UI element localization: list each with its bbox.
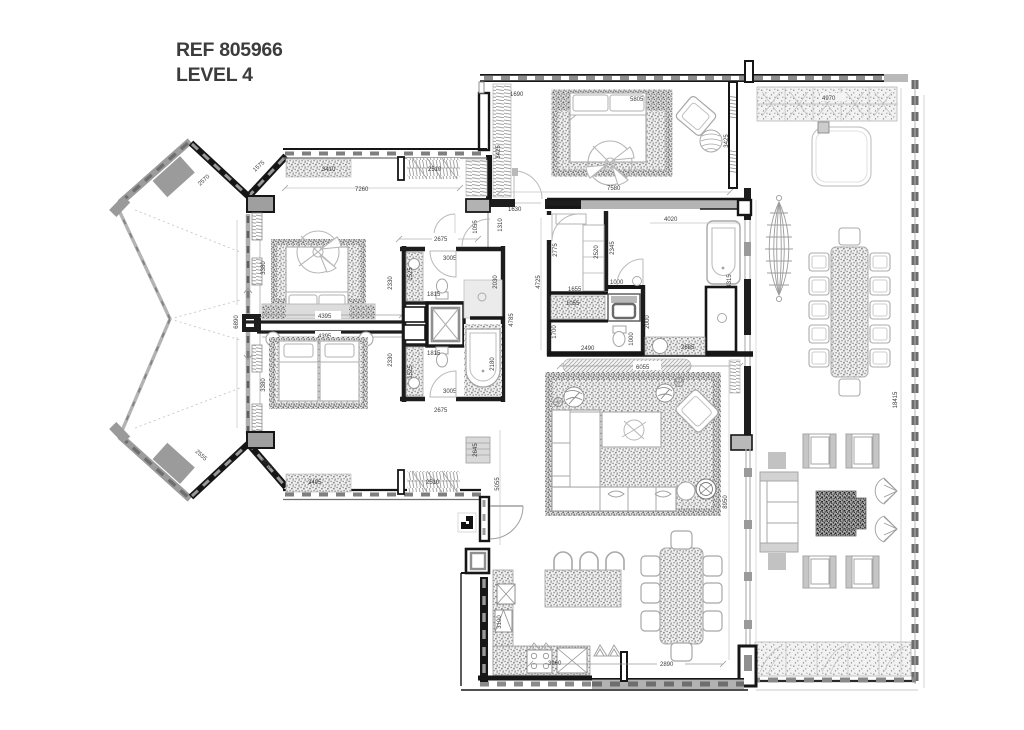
svg-text:3100: 3100 [497,615,503,629]
svg-text:6890: 6890 [234,315,240,329]
svg-text:4315: 4315 [727,274,733,288]
svg-text:2520: 2520 [594,245,600,259]
svg-text:1815: 1815 [427,351,441,357]
svg-text:7260: 7260 [355,187,369,193]
svg-text:2645: 2645 [473,443,479,457]
svg-text:3380: 3380 [261,261,267,275]
svg-text:2490: 2490 [581,346,595,352]
svg-text:3495: 3495 [308,480,322,486]
svg-text:LEVEL 4: LEVEL 4 [176,64,253,86]
svg-text:2000: 2000 [645,315,651,329]
svg-text:4725: 4725 [536,275,542,289]
svg-text:2675: 2675 [434,237,448,243]
svg-text:4395: 4395 [318,314,332,320]
svg-text:1525: 1525 [408,267,414,281]
svg-text:8950: 8950 [723,495,729,509]
svg-text:1310: 1310 [498,218,504,232]
svg-text:5055: 5055 [495,477,501,491]
svg-text:6055: 6055 [636,365,650,371]
svg-text:3425: 3425 [724,134,730,148]
svg-text:3005: 3005 [443,389,457,395]
svg-text:5805: 5805 [630,97,644,103]
svg-text:2330: 2330 [388,276,394,290]
svg-text:2685: 2685 [681,345,695,351]
svg-text:7580: 7580 [607,186,621,192]
svg-text:2330: 2330 [388,353,394,367]
svg-text:2675: 2675 [434,408,448,414]
svg-text:2775: 2775 [553,243,559,257]
svg-text:3410: 3410 [322,167,336,173]
svg-text:3005: 3005 [443,256,457,262]
svg-text:1700: 1700 [552,325,558,339]
svg-text:2345: 2345 [610,241,616,255]
svg-text:1525: 1525 [408,365,414,379]
svg-text:2510: 2510 [426,480,440,486]
svg-text:1630: 1630 [508,207,522,213]
svg-text:4020: 4020 [664,217,678,223]
svg-text:1000: 1000 [629,332,635,346]
svg-text:1055: 1055 [566,301,580,307]
svg-text:3380: 3380 [261,378,267,392]
svg-text:REF 805966: REF 805966 [176,39,283,61]
svg-text:4785: 4785 [509,313,515,327]
svg-text:1690: 1690 [510,92,524,98]
svg-text:3425: 3425 [496,145,502,159]
svg-text:2890: 2890 [660,662,674,668]
svg-text:2180: 2180 [490,357,496,371]
svg-text:2510: 2510 [428,167,442,173]
svg-text:2030: 2030 [493,275,499,289]
svg-text:18415: 18415 [893,391,899,408]
svg-text:4970: 4970 [822,96,836,102]
svg-text:1815: 1815 [427,292,441,298]
